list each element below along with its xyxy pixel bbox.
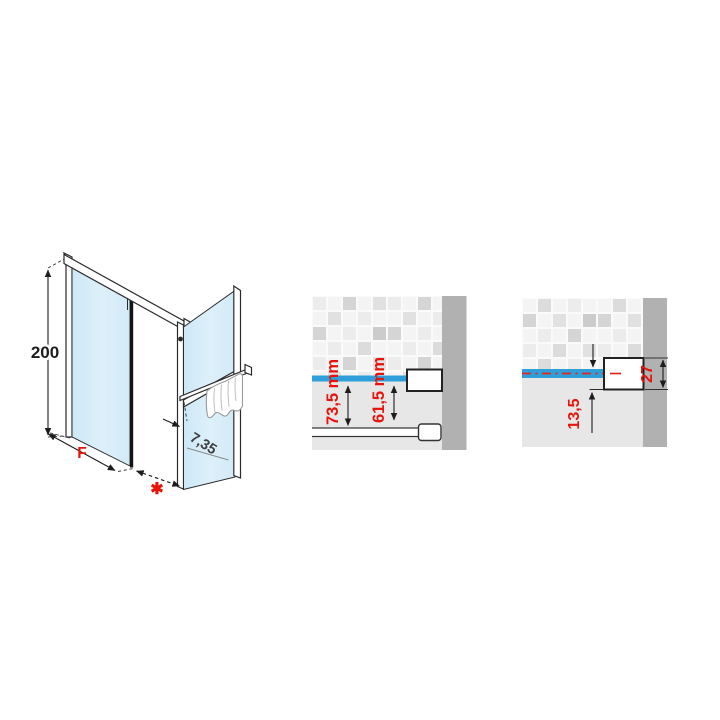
wall-section-detail-right: 13,5 27: [522, 298, 668, 447]
extension-dimension: ✱: [137, 471, 180, 498]
fixed-panel-label: F: [77, 445, 86, 462]
front-glass-panel: [72, 267, 132, 468]
dim-27-label: 27: [639, 365, 656, 383]
dim-73-5-label: 73,5 mm: [324, 359, 342, 425]
dim-61-5-label: 61,5 mm: [370, 357, 388, 423]
wall-bar: [442, 296, 467, 450]
rail-end-cap: [419, 424, 442, 441]
wall-bracket: [407, 370, 442, 392]
towel-bar-mount: [245, 365, 252, 376]
page-canvas: 200: [0, 0, 720, 720]
height-dimension-200: 200: [31, 258, 66, 437]
corner-post: [178, 322, 184, 489]
detail-right-svg: 13,5 27: [522, 298, 668, 447]
extension-asterisk: ✱: [150, 481, 163, 498]
detail-left-svg: 73,5 mm 61,5 mm: [312, 296, 467, 450]
height-label: 200: [31, 343, 59, 362]
dim-13-5-label: 13,5: [566, 398, 583, 429]
wall-section-detail-left: 73,5 mm 61,5 mm: [312, 296, 467, 450]
post-screw-knob: [178, 337, 183, 342]
wall-bracket: [604, 358, 644, 390]
isometric-drawing-svg: 200: [26, 243, 258, 505]
rail-axis-line: [522, 369, 604, 378]
isometric-shower-diagram: 200: [26, 243, 258, 505]
wall-profile-left: [64, 253, 72, 437]
